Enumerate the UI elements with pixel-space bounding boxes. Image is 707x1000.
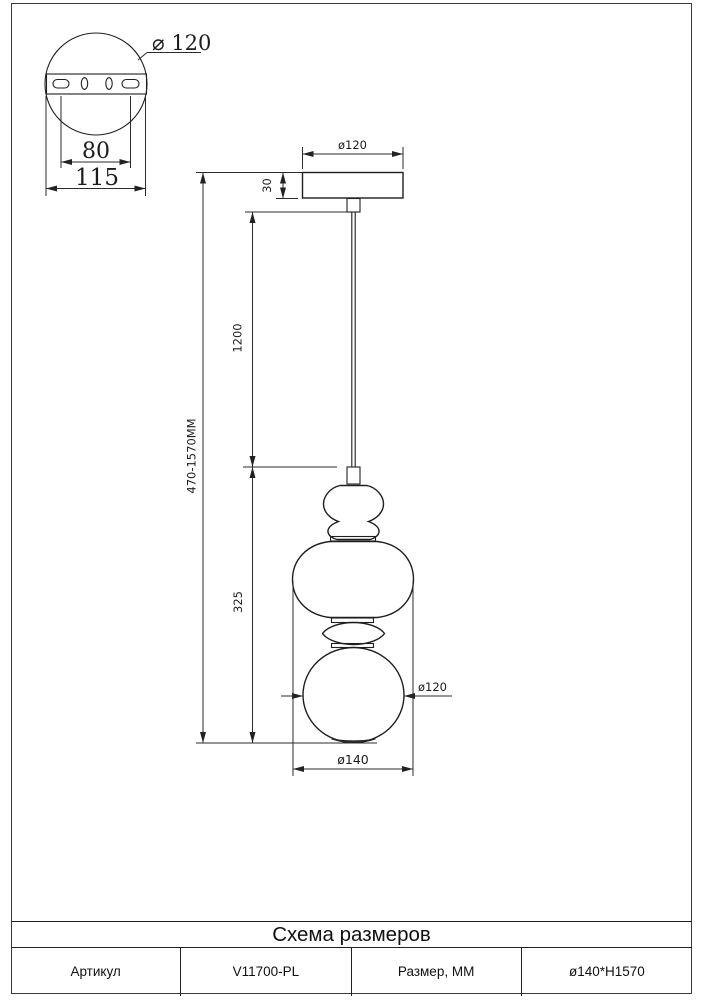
size-label: Размер, ММ: [352, 948, 522, 996]
drawing-sheet: ⌀ 120 80 115 ø120 30: [0, 0, 707, 1000]
table-title: Схема размеров: [11, 922, 692, 948]
article-value: V11700-PL: [181, 948, 351, 996]
article-label: Артикул: [11, 948, 181, 996]
spec-table: Схема размеров Артикул V11700-PL Размер,…: [11, 921, 692, 995]
sheet-border: [11, 3, 692, 994]
table-row: Артикул V11700-PL Размер, ММ ø140*H1570: [11, 948, 692, 996]
size-value: ø140*H1570: [522, 948, 692, 996]
